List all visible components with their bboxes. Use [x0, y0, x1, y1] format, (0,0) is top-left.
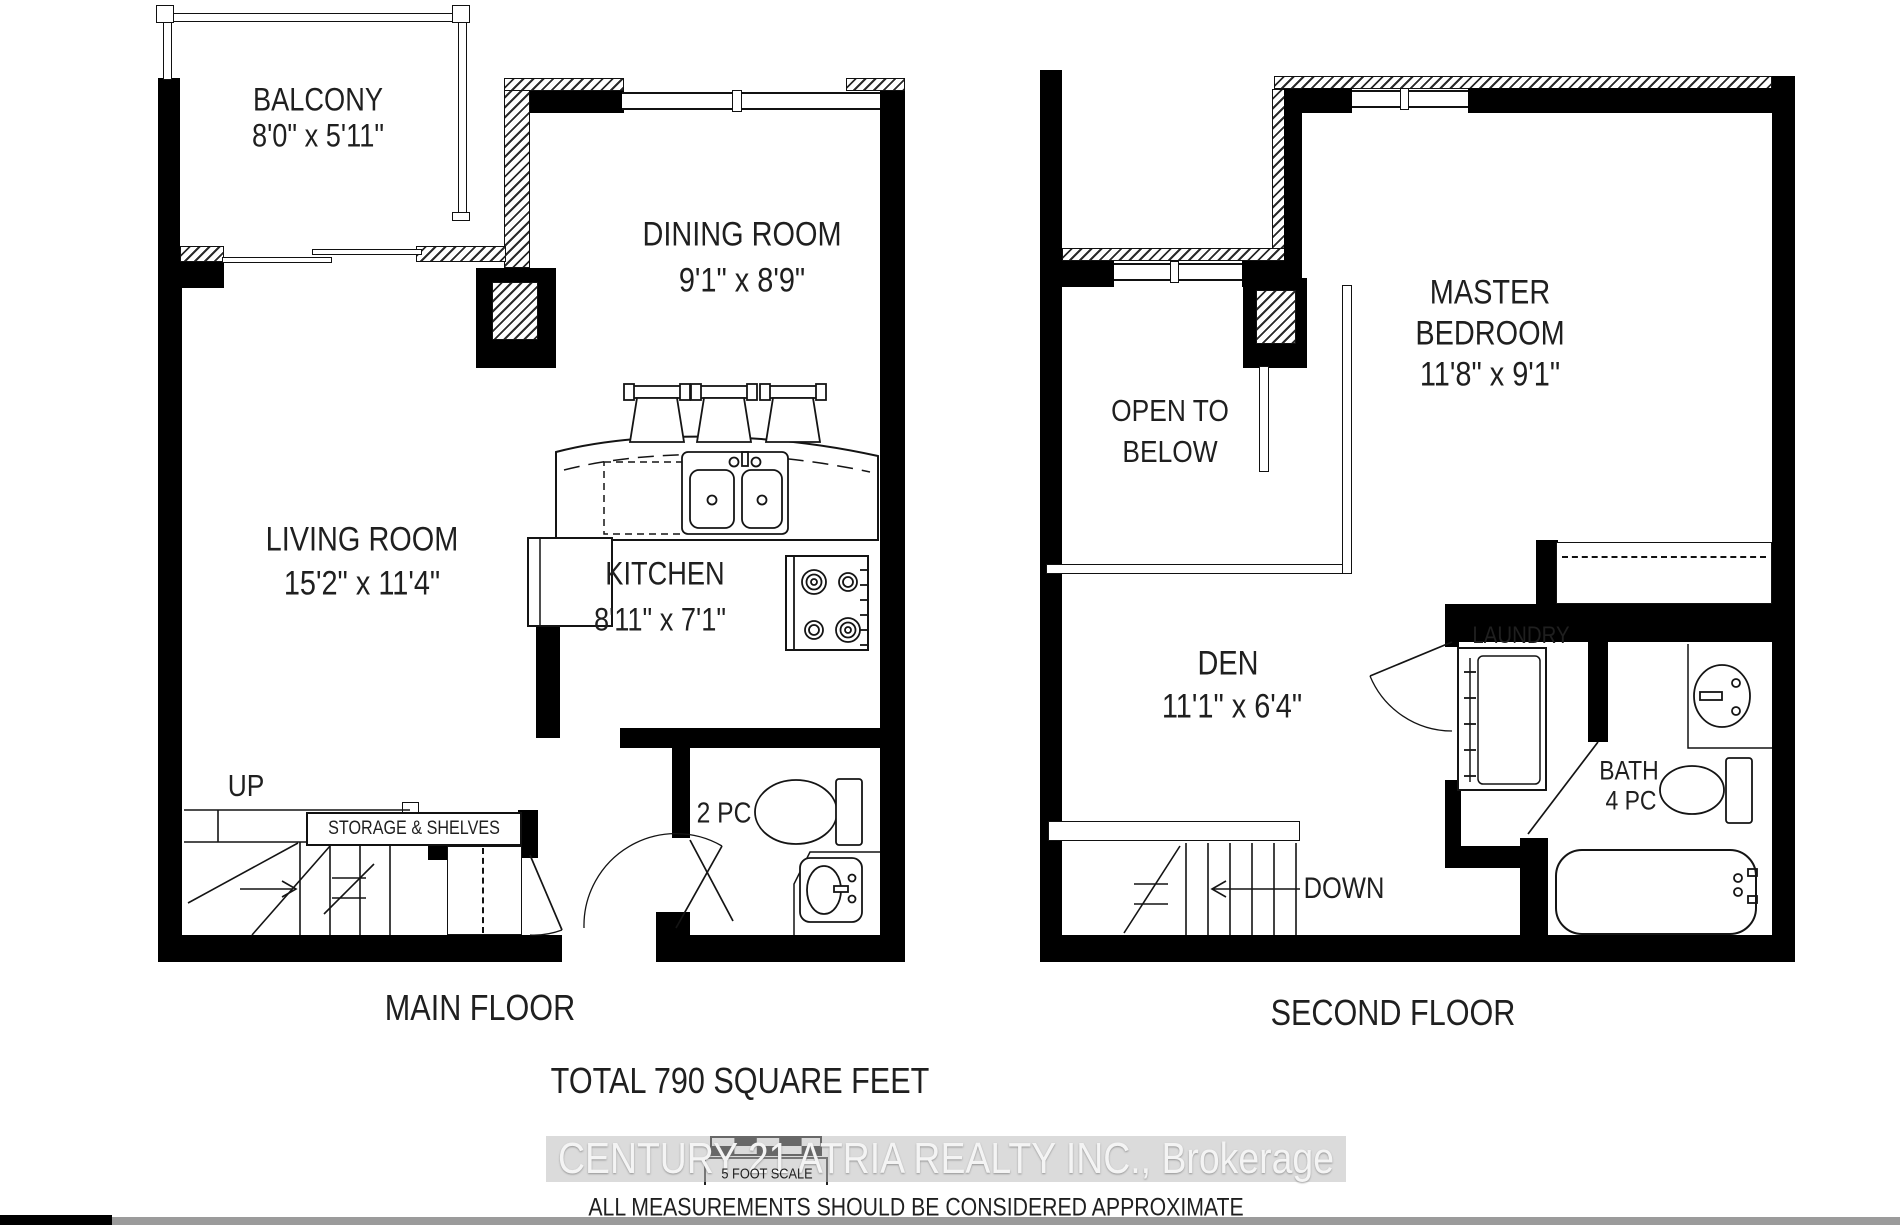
railing-post	[452, 212, 470, 221]
dining-room-dims: 9'1" x 8'9"	[679, 262, 805, 301]
wall	[1062, 261, 1114, 287]
floor-plan-page: STORAGE & SHELVES	[0, 0, 1900, 1225]
wall	[1040, 935, 1795, 962]
powder-room-label: 2 PC	[697, 798, 752, 831]
closet	[1556, 542, 1772, 604]
open-below-railing	[1342, 285, 1352, 574]
wall	[880, 89, 905, 962]
window-mullion	[1400, 88, 1409, 110]
sliding-door	[312, 249, 422, 255]
wall	[158, 260, 224, 288]
wall	[620, 728, 905, 748]
wall	[158, 935, 562, 962]
hatched-wall	[846, 78, 905, 91]
wall	[656, 935, 905, 962]
wall	[1468, 88, 1772, 113]
total-area-label: TOTAL 790 SQUARE FEET	[551, 1060, 930, 1102]
living-room-label: LIVING ROOM	[266, 521, 459, 560]
hatched-wall	[180, 246, 224, 262]
hatched-wall	[1062, 248, 1288, 261]
railing-post	[452, 5, 470, 23]
main-floor-title: MAIN FLOOR	[385, 987, 575, 1029]
door-icon	[530, 834, 733, 935]
bar-stool-icon	[624, 384, 826, 442]
wall	[1588, 642, 1608, 742]
scale-label: 5 FOOT SCALE	[721, 1166, 812, 1183]
balcony-railing	[163, 22, 172, 80]
second-floor-title: SECOND FLOOR	[1271, 992, 1516, 1034]
den-label: DEN	[1197, 645, 1258, 684]
stairs-down	[1124, 843, 1300, 935]
bathroom-sink-icon	[794, 852, 880, 935]
stove-icon	[786, 556, 868, 650]
kitchen-sink-icon	[682, 452, 788, 534]
closet-dashed-line	[1562, 556, 1766, 558]
wall	[536, 622, 560, 738]
master-bedroom-label: MASTER	[1430, 274, 1550, 313]
wall	[1284, 88, 1302, 285]
bathtub-icon	[1556, 850, 1757, 934]
hatched-wall	[504, 78, 530, 268]
hatched-wall	[1256, 290, 1296, 344]
door-jamb	[1536, 540, 1558, 606]
window-mullion	[732, 90, 742, 112]
brokerage-watermark: CENTURY 21 ATRIA REALTY INC., Brokerage	[558, 1134, 1334, 1184]
door-jamb	[1445, 625, 1459, 647]
kitchen-dims: 8'11" x 7'1"	[594, 602, 726, 639]
open-to-below-label: OPEN TO	[1111, 393, 1229, 429]
door-icon	[1370, 642, 1598, 834]
master-bedroom-label: BEDROOM	[1415, 315, 1564, 354]
stairs-down-label: DOWN	[1304, 872, 1385, 906]
hatched-wall	[416, 246, 506, 262]
wall	[158, 78, 180, 270]
washer-icon	[1458, 648, 1546, 790]
stairs-up-label: UP	[228, 768, 265, 804]
wall	[1445, 846, 1520, 868]
closet-centerline	[482, 848, 484, 933]
stair-landing	[1048, 821, 1300, 841]
kitchen-label: KITCHEN	[605, 556, 724, 593]
dining-room-label: DINING ROOM	[642, 216, 841, 255]
den-dims: 11'1" x 6'4"	[1162, 688, 1302, 727]
wall	[1772, 76, 1795, 962]
wall	[1302, 88, 1352, 113]
window-mullion	[1170, 261, 1179, 283]
bath-pieces: 4 PC	[1605, 786, 1656, 817]
living-room-dims: 15'2" x 11'4"	[284, 565, 440, 604]
master-bedroom-dims: 11'8" x 9'1"	[1420, 356, 1560, 395]
railing	[1259, 366, 1269, 472]
storage-label: STORAGE & SHELVES	[328, 818, 500, 840]
balcony-dims: 8'0" x 5'11"	[252, 118, 384, 155]
sliding-door	[222, 257, 332, 263]
toilet-icon	[755, 779, 862, 845]
storage-label-box: STORAGE & SHELVES	[306, 812, 522, 846]
balcony-railing	[168, 13, 466, 22]
open-below-railing	[1046, 564, 1352, 574]
closet	[447, 846, 522, 935]
hatched-wall	[492, 282, 538, 340]
open-to-below-label: BELOW	[1122, 434, 1217, 470]
wall	[672, 748, 690, 838]
hatched-wall	[504, 78, 624, 91]
laundry-label: LAUNDRY	[1472, 622, 1569, 650]
door-jamb	[656, 912, 690, 938]
railing-post	[156, 5, 174, 23]
kitchen-counter-icon	[556, 437, 878, 540]
bathroom-sink-icon	[1688, 644, 1772, 748]
window	[622, 92, 880, 110]
window	[1352, 90, 1468, 108]
wall	[528, 91, 624, 113]
balcony-railing	[458, 22, 467, 216]
disclaimer-label: ALL MEASUREMENTS SHOULD BE CONSIDERED AP…	[588, 1194, 1243, 1223]
balcony-label: BALCONY	[253, 82, 383, 119]
toilet-icon	[1660, 758, 1752, 823]
wall	[158, 262, 182, 962]
bath-label: BATH	[1599, 756, 1659, 787]
wall	[1520, 838, 1548, 938]
bottom-bar-black	[0, 1215, 112, 1225]
